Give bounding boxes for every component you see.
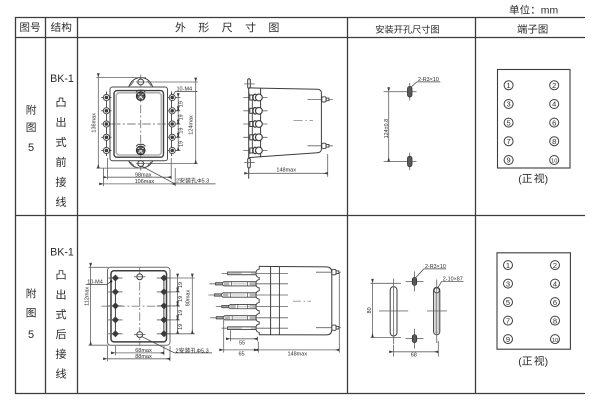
svg-text:6: 6: [552, 118, 556, 127]
svg-text:): ): [545, 173, 549, 185]
svg-text:68: 68: [411, 352, 417, 358]
svg-text:19: 19: [178, 324, 184, 330]
svg-text:19: 19: [178, 101, 184, 107]
svg-text:1: 1: [507, 81, 511, 90]
svg-text:4: 4: [552, 100, 556, 109]
svg-text:148max: 148max: [288, 351, 308, 357]
svg-text:3: 3: [506, 279, 510, 288]
svg-text:98max: 98max: [135, 172, 152, 178]
svg-text:65: 65: [238, 351, 244, 357]
svg-text:80: 80: [367, 307, 373, 313]
svg-text:mm: mm: [541, 6, 558, 17]
svg-text:(: (: [518, 356, 522, 368]
svg-text:19: 19: [178, 310, 184, 316]
svg-text:124max: 124max: [189, 115, 195, 135]
svg-text:): ): [545, 356, 549, 368]
svg-text:10: 10: [551, 159, 557, 165]
svg-text:55: 55: [239, 340, 245, 346]
svg-text:112max: 112max: [84, 286, 90, 305]
svg-text:7: 7: [507, 137, 511, 146]
svg-text:Φ5.3: Φ5.3: [197, 349, 209, 355]
svg-text:2: 2: [552, 81, 556, 90]
svg-text:BK-1: BK-1: [50, 73, 74, 85]
svg-text:124±0.8: 124±0.8: [384, 119, 390, 138]
svg-text:3: 3: [507, 100, 511, 109]
svg-text:5: 5: [506, 298, 510, 307]
svg-text:6: 6: [553, 298, 557, 307]
svg-text:80max: 80max: [186, 289, 192, 306]
svg-text:9: 9: [507, 156, 511, 165]
svg-text:2: 2: [553, 261, 557, 270]
svg-text:19: 19: [178, 114, 184, 120]
svg-text:(: (: [518, 173, 522, 185]
svg-text:19: 19: [178, 296, 184, 302]
svg-text:1: 1: [506, 261, 510, 270]
svg-text:8: 8: [552, 137, 556, 146]
svg-text:5: 5: [507, 118, 511, 127]
svg-text:88max: 88max: [135, 354, 152, 360]
svg-text:5: 5: [28, 142, 34, 154]
svg-text:5: 5: [28, 329, 34, 341]
svg-text:148max: 148max: [276, 168, 296, 174]
svg-text:19: 19: [178, 282, 184, 288]
svg-text:9: 9: [506, 335, 510, 344]
svg-text:8: 8: [553, 316, 557, 325]
svg-text:BK-1: BK-1: [50, 246, 74, 258]
svg-text:106max: 106max: [135, 179, 155, 185]
svg-text:19: 19: [178, 141, 184, 147]
svg-text:10: 10: [552, 338, 558, 344]
svg-text:2: 2: [176, 349, 179, 355]
svg-text:7: 7: [506, 316, 510, 325]
svg-text:4: 4: [553, 279, 557, 288]
svg-text:136max: 136max: [92, 113, 98, 133]
svg-text:19: 19: [178, 128, 184, 134]
